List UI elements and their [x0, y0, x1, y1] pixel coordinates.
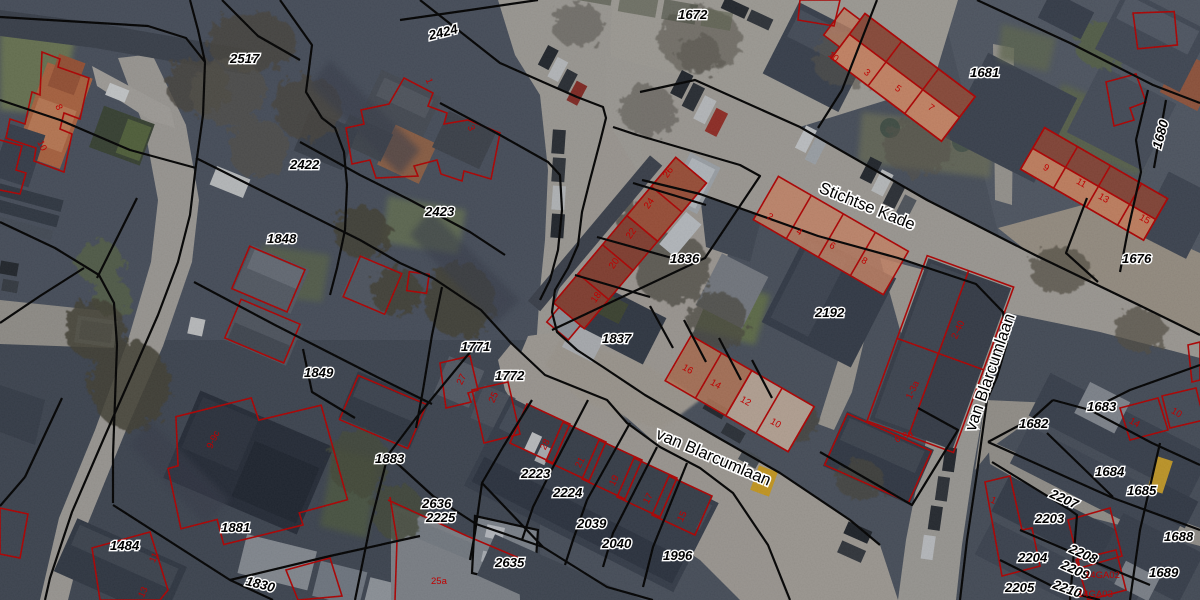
- svg-text:2517: 2517: [229, 51, 260, 66]
- svg-text:2040: 2040: [601, 536, 632, 551]
- svg-text:1684: 1684: [1095, 464, 1125, 479]
- svg-text:2204: 2204: [1017, 550, 1048, 565]
- svg-text:14GA03: 14GA03: [1078, 589, 1113, 600]
- svg-text:1837: 1837: [602, 331, 632, 346]
- svg-text:1685: 1685: [1127, 483, 1157, 498]
- svg-text:1672: 1672: [678, 7, 708, 22]
- svg-text:1689: 1689: [1149, 565, 1179, 580]
- svg-text:2039: 2039: [576, 516, 607, 531]
- svg-text:2203: 2203: [1034, 511, 1065, 526]
- svg-text:2225: 2225: [425, 510, 456, 525]
- svg-text:2223: 2223: [520, 466, 551, 481]
- svg-text:25a: 25a: [431, 576, 448, 587]
- svg-text:1676: 1676: [1122, 251, 1152, 266]
- svg-text:1836: 1836: [670, 251, 700, 266]
- svg-text:2192: 2192: [814, 305, 845, 320]
- svg-text:1682: 1682: [1019, 416, 1049, 431]
- svg-text:1683: 1683: [1087, 399, 1117, 414]
- svg-text:1883: 1883: [375, 451, 405, 466]
- svg-text:2423: 2423: [424, 204, 455, 219]
- svg-text:1996: 1996: [663, 548, 693, 563]
- svg-text:14GA02: 14GA02: [1085, 570, 1120, 581]
- svg-text:2224: 2224: [552, 485, 583, 500]
- svg-text:2205: 2205: [1004, 580, 1035, 595]
- svg-text:1688: 1688: [1164, 529, 1194, 544]
- svg-text:1484: 1484: [110, 538, 140, 553]
- svg-text:1848: 1848: [267, 231, 297, 246]
- svg-text:1772: 1772: [495, 368, 525, 383]
- svg-text:2422: 2422: [289, 157, 320, 172]
- svg-text:1881: 1881: [221, 520, 250, 535]
- svg-text:1681: 1681: [970, 65, 999, 80]
- svg-text:1849: 1849: [304, 365, 334, 380]
- svg-text:2635: 2635: [494, 555, 525, 570]
- svg-text:2636: 2636: [421, 496, 452, 511]
- svg-text:1771: 1771: [461, 339, 490, 354]
